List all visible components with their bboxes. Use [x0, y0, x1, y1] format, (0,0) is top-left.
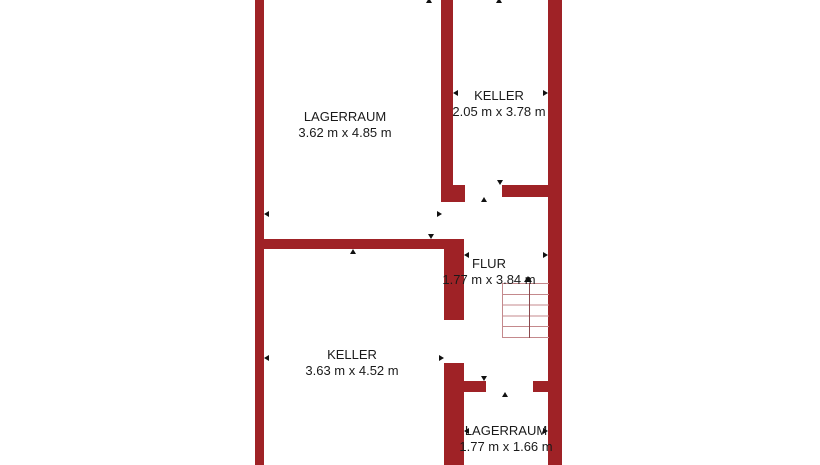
- wall-right-outer: [548, 0, 562, 465]
- room-label-lagerraum-top: LAGERRAUM 3.62 m x 4.85 m: [298, 109, 391, 141]
- room-label-flur: FLUR 1.77 m x 3.84 m: [442, 256, 535, 288]
- dim-arrow-up-icon: [481, 197, 487, 202]
- dim-arrow-left-icon: [264, 211, 269, 217]
- wall-middle-upper: [441, 0, 453, 202]
- room-label-lagerraum-bottom: LAGERRAUM 1.77 m x 1.66 m: [459, 423, 552, 455]
- dim-arrow-down-icon: [481, 376, 487, 381]
- wall-flur-bottom-right-stub: [533, 381, 549, 392]
- room-dimensions: 2.05 m x 3.78 m: [452, 104, 545, 120]
- dim-arrow-left-icon: [264, 355, 269, 361]
- staircase: [502, 283, 549, 338]
- dim-arrow-left-icon: [464, 252, 469, 258]
- floor-plan: LAGERRAUM 3.62 m x 4.85 m KELLER 2.05 m …: [0, 0, 820, 465]
- dim-arrow-right-icon: [543, 252, 548, 258]
- dim-arrow-up-icon: [426, 0, 432, 3]
- wall-left-outer: [255, 0, 264, 465]
- dim-arrow-up-icon: [350, 249, 356, 254]
- room-name: LAGERRAUM: [459, 423, 552, 439]
- dim-arrow-down-icon: [497, 180, 503, 185]
- dim-arrow-right-icon: [439, 355, 444, 361]
- dim-arrow-up-icon: [496, 0, 502, 3]
- room-dimensions: 3.63 m x 4.52 m: [305, 363, 398, 379]
- wall-keller-top-bottom: [502, 185, 549, 197]
- dim-arrow-right-icon: [543, 90, 548, 96]
- stair-walking-line: [529, 283, 530, 338]
- room-dimensions: 1.77 m x 1.66 m: [459, 439, 552, 455]
- dim-arrow-up-icon: [502, 392, 508, 397]
- stair-direction-arrow-icon: [524, 276, 532, 282]
- room-name: LAGERRAUM: [298, 109, 391, 125]
- dim-arrow-down-icon: [428, 234, 434, 239]
- room-dimensions: 3.62 m x 4.85 m: [298, 125, 391, 141]
- wall-horizontal-divider: [255, 239, 464, 249]
- dim-arrow-right-icon: [543, 428, 548, 434]
- room-name: FLUR: [442, 256, 535, 272]
- room-label-keller-bottom: KELLER 3.63 m x 4.52 m: [305, 347, 398, 379]
- dim-arrow-left-icon: [464, 428, 469, 434]
- room-name: KELLER: [452, 88, 545, 104]
- wall-door-jamb-keller-top: [441, 185, 465, 202]
- room-label-keller-top: KELLER 2.05 m x 3.78 m: [452, 88, 545, 120]
- room-name: KELLER: [305, 347, 398, 363]
- wall-flur-bottom-left-stub: [464, 381, 486, 392]
- room-dimensions: 1.77 m x 3.84 m: [442, 272, 535, 288]
- dim-arrow-left-icon: [453, 90, 458, 96]
- dim-arrow-right-icon: [437, 211, 442, 217]
